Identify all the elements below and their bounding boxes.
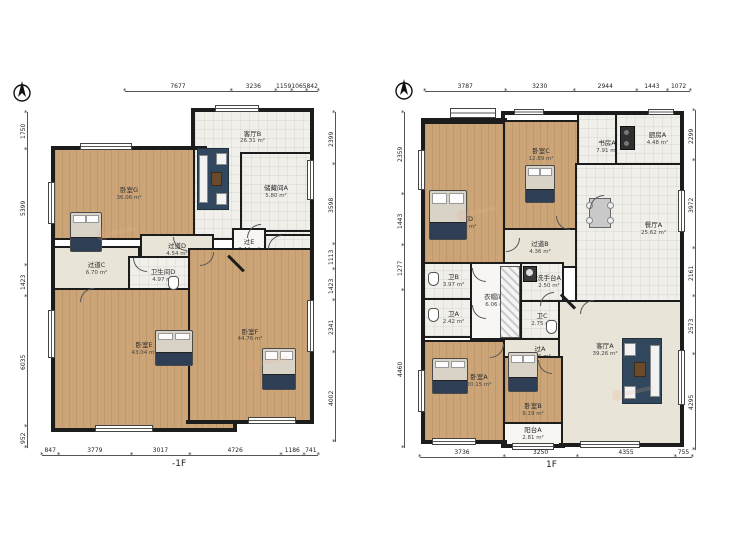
- dimension-value: 3250: [533, 449, 548, 456]
- dimension-chain-bottom: 847 3779 3017 4726 1186 741: [42, 448, 318, 458]
- wall: [310, 108, 314, 424]
- window: [580, 441, 640, 448]
- room-label: 卧室F 44.76 m²: [237, 328, 262, 344]
- dimension-chain-right: 2399 3598 1113 1423 2341 4002: [330, 112, 341, 442]
- room-label: 过道B 4.36 m²: [529, 240, 551, 256]
- room-label: 卧室C 12.89 m²: [528, 147, 553, 163]
- dimension-value: 1750: [20, 119, 27, 143]
- room-hall-c: 过道C 6.70 m²: [53, 246, 140, 292]
- window: [678, 350, 685, 405]
- window: [215, 105, 259, 112]
- dimension-value: 3779: [87, 447, 102, 454]
- room-area: 4.36 m²: [529, 249, 551, 256]
- window: [95, 425, 153, 432]
- bed-icon: [508, 352, 538, 392]
- room-area: 2.81 m²: [522, 435, 544, 442]
- room-area: 43.04 m²: [131, 350, 156, 357]
- dimension-value: 1159: [276, 83, 291, 90]
- toilet-icon: [428, 272, 439, 286]
- dimension-value: 2299: [688, 124, 695, 148]
- dimension-value: 1443: [644, 83, 659, 90]
- window: [307, 300, 314, 352]
- room-label: 餐厅A 25.62 m²: [641, 221, 666, 237]
- room-area: 26.31 m²: [240, 138, 265, 145]
- room-area: 2.42 m²: [443, 319, 465, 326]
- room-name: 卫B: [443, 273, 465, 281]
- room-label: 卧室E 43.04 m²: [131, 341, 156, 357]
- window: [48, 182, 55, 224]
- dimension-value: 7677: [170, 83, 185, 90]
- room-name: 卧室F: [237, 328, 262, 336]
- floor-label-minus-1f: -1F: [172, 459, 186, 469]
- dimension-value: 842: [306, 83, 317, 90]
- room-label: 卫A 2.42 m²: [443, 310, 465, 326]
- toilet-icon: [428, 308, 439, 322]
- dimension-value: 3972: [688, 193, 695, 217]
- toilet-icon: [546, 320, 557, 334]
- dimension-value: 2359: [397, 142, 404, 166]
- room-name: 卧室E: [131, 341, 156, 349]
- dimension-value: 952: [20, 426, 27, 450]
- window: [418, 370, 425, 412]
- dimension-value: 3236: [246, 83, 261, 90]
- wardrobe-icon: [500, 266, 520, 338]
- room-living-a: 客厅A 39.26 m²: [558, 300, 682, 445]
- room-bedroom-f: 卧室F 44.76 m²: [188, 248, 312, 422]
- room-area: 36.06 m²: [116, 195, 141, 202]
- room-area: 5.80 m²: [264, 193, 288, 200]
- room-storage-a: 储藏间A 5.80 m²: [240, 152, 312, 232]
- dimension-value: 4002: [328, 386, 335, 410]
- room-label: 过道C 6.70 m²: [86, 261, 108, 277]
- room-area: 3.97 m²: [443, 282, 465, 289]
- dimension-value: 2944: [598, 83, 613, 90]
- room-area: 20.15 m²: [466, 382, 491, 389]
- room-area: 39.26 m²: [592, 351, 617, 358]
- window: [307, 160, 314, 200]
- window: [248, 417, 296, 424]
- room-label: 客厅A 39.26 m²: [592, 342, 617, 358]
- dimension-value: 2573: [688, 314, 695, 338]
- room-name: 过道C: [86, 261, 108, 269]
- room-label: 储藏间A 5.80 m²: [264, 184, 288, 200]
- dimension-chain-right: 2299 3972 2161 2573 4295: [690, 110, 701, 450]
- dimension-value: 3787: [458, 83, 473, 90]
- room-name: 卧室C: [528, 147, 553, 155]
- room-name: 卧室G: [116, 186, 141, 194]
- coffee-table-icon: [634, 362, 646, 377]
- room-name: 储藏间A: [264, 184, 288, 192]
- room-label: 卧室A 20.15 m²: [466, 373, 491, 389]
- room-area: 25.62 m²: [641, 230, 666, 237]
- dimension-value: 741: [305, 447, 316, 454]
- dimension-value: 3017: [153, 447, 168, 454]
- dimension-value: 1113: [328, 245, 335, 269]
- room-name: 客厅B: [240, 130, 265, 138]
- dimension-value: 847: [44, 447, 55, 454]
- dimension-value: 1423: [328, 274, 335, 298]
- room-name: 阳台A: [522, 426, 544, 434]
- dimension-value: 6035: [20, 350, 27, 374]
- room-label: 卫B 3.97 m²: [443, 273, 465, 289]
- room-area: 44.76 m²: [237, 336, 262, 343]
- floorplan-canvas: 卧室G 36.06 m² 客厅B 26.31 m² 储藏间A 5.80 m² 过…: [0, 0, 729, 547]
- window: [432, 438, 476, 445]
- room-label: 厨房A 4.48 m²: [647, 131, 669, 147]
- dimension-value: 755: [678, 449, 689, 456]
- dimension-value: 3230: [532, 83, 547, 90]
- room-name: 卧室A: [466, 373, 491, 381]
- bed-icon: [432, 358, 468, 394]
- room-name: 客厅A: [592, 342, 617, 350]
- window: [80, 143, 132, 150]
- toilet-icon: [168, 276, 179, 290]
- coffee-table-icon: [211, 172, 222, 186]
- room-label: 客厅B 26.31 m²: [240, 130, 265, 146]
- compass-north-icon: [394, 78, 414, 102]
- dimension-chain-left: 2359 1443 1277 4460: [399, 112, 410, 448]
- window: [48, 310, 55, 358]
- stove-icon: [620, 126, 635, 150]
- bay-window: [450, 108, 496, 118]
- wall: [421, 118, 507, 122]
- dimension-chain-left: 1750 5399 1423 6035 952: [22, 112, 33, 448]
- dimension-value: 1423: [20, 270, 27, 294]
- sink-icon: [523, 266, 537, 282]
- dimension-value: 2399: [328, 127, 335, 151]
- window: [648, 109, 674, 115]
- room-label: 阳台A 2.81 m²: [522, 426, 544, 442]
- window: [678, 190, 685, 232]
- bed-icon: [155, 330, 193, 366]
- room-area: 4.48 m²: [647, 140, 669, 147]
- room-name: 卫A: [443, 310, 465, 318]
- dimension-value: 1072: [671, 83, 686, 90]
- window: [514, 109, 544, 115]
- dimension-value: 3598: [328, 193, 335, 217]
- room-dining-a: 餐厅A 25.62 m²: [575, 163, 682, 315]
- wall: [501, 111, 505, 122]
- room-label: 洗手台A 2.50 m²: [537, 274, 561, 290]
- room-name: 过E: [238, 238, 260, 246]
- room-name: 过道B: [529, 240, 551, 248]
- dimension-value: 4726: [228, 447, 243, 454]
- dimension-value: 4460: [397, 357, 404, 381]
- room-label: 卧室G 36.06 m²: [116, 186, 141, 202]
- dimension-value: 2161: [688, 261, 695, 285]
- room-name: 厨房A: [647, 131, 669, 139]
- room-area: 9.19 m²: [522, 411, 544, 418]
- room-label: 卧室B 9.19 m²: [522, 402, 544, 418]
- compass-north-icon: [12, 80, 32, 104]
- window: [418, 150, 425, 190]
- floor-label-1f: 1F: [546, 460, 557, 470]
- room-name: 卧室B: [522, 402, 544, 410]
- room-name: 餐厅A: [641, 221, 666, 229]
- bed-icon: [525, 165, 555, 203]
- room-area: 12.89 m²: [528, 156, 553, 163]
- room-area: 2.50 m²: [537, 283, 561, 290]
- dimension-chain-bottom: 3736 3250 4355 755: [420, 450, 692, 460]
- dimension-chain-top: 7677 3236 1159 1065 842: [125, 84, 318, 94]
- dimension-chain-top: 3787 3230 2944 1443 1072: [425, 84, 690, 94]
- room-area: 6.70 m²: [86, 270, 108, 277]
- wall: [191, 108, 195, 150]
- dimension-value: 1443: [397, 209, 404, 233]
- dimension-value: 1277: [397, 256, 404, 280]
- dimension-value: 5399: [20, 196, 27, 220]
- dimension-value: 2341: [328, 315, 335, 339]
- room-name: 洗手台A: [537, 274, 561, 282]
- dimension-value: 4295: [688, 390, 695, 414]
- dimension-value: 1186: [285, 447, 300, 454]
- dimension-value: 3736: [454, 449, 469, 456]
- dimension-value: 4355: [618, 449, 633, 456]
- dimension-value: 1065: [291, 83, 306, 90]
